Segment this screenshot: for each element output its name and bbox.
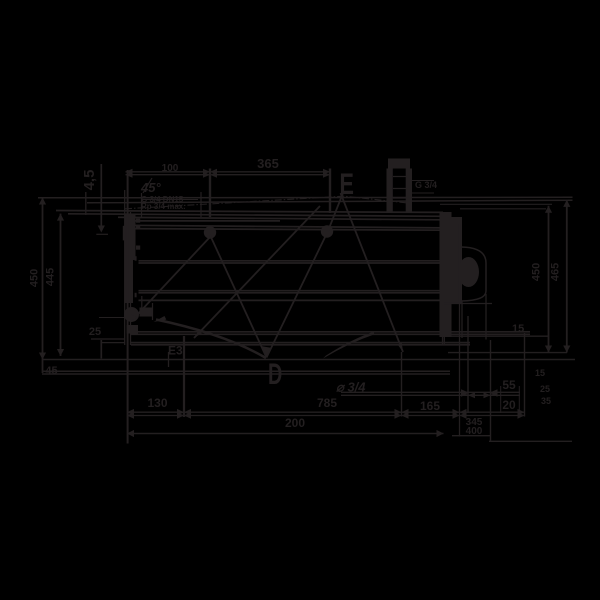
svg-text:20: 20 bbox=[502, 398, 516, 412]
svg-text:G 3/4: G 3/4 bbox=[415, 180, 437, 190]
svg-text:45: 45 bbox=[45, 365, 57, 377]
svg-text:130: 130 bbox=[147, 396, 167, 410]
svg-text:465: 465 bbox=[550, 263, 562, 281]
svg-text:E3: E3 bbox=[168, 344, 183, 358]
svg-text:25: 25 bbox=[540, 384, 550, 394]
svg-text:15: 15 bbox=[535, 368, 545, 378]
svg-text:100: 100 bbox=[162, 163, 179, 174]
svg-text:365: 365 bbox=[257, 156, 279, 171]
svg-text:25: 25 bbox=[89, 326, 101, 338]
svg-text:15: 15 bbox=[512, 323, 524, 335]
svg-text:445: 445 bbox=[45, 268, 57, 286]
svg-text:35: 35 bbox=[541, 396, 551, 406]
svg-text:785: 785 bbox=[317, 396, 337, 410]
svg-text:450: 450 bbox=[531, 263, 543, 281]
svg-text:4,5: 4,5 bbox=[81, 170, 98, 191]
svg-text:Rp 3/4 max.: Rp 3/4 max. bbox=[141, 202, 185, 211]
svg-text:450: 450 bbox=[29, 269, 41, 287]
svg-text:200: 200 bbox=[285, 416, 305, 430]
svg-text:D: D bbox=[268, 358, 282, 391]
svg-text:55: 55 bbox=[502, 378, 516, 392]
svg-text:165: 165 bbox=[420, 399, 440, 413]
